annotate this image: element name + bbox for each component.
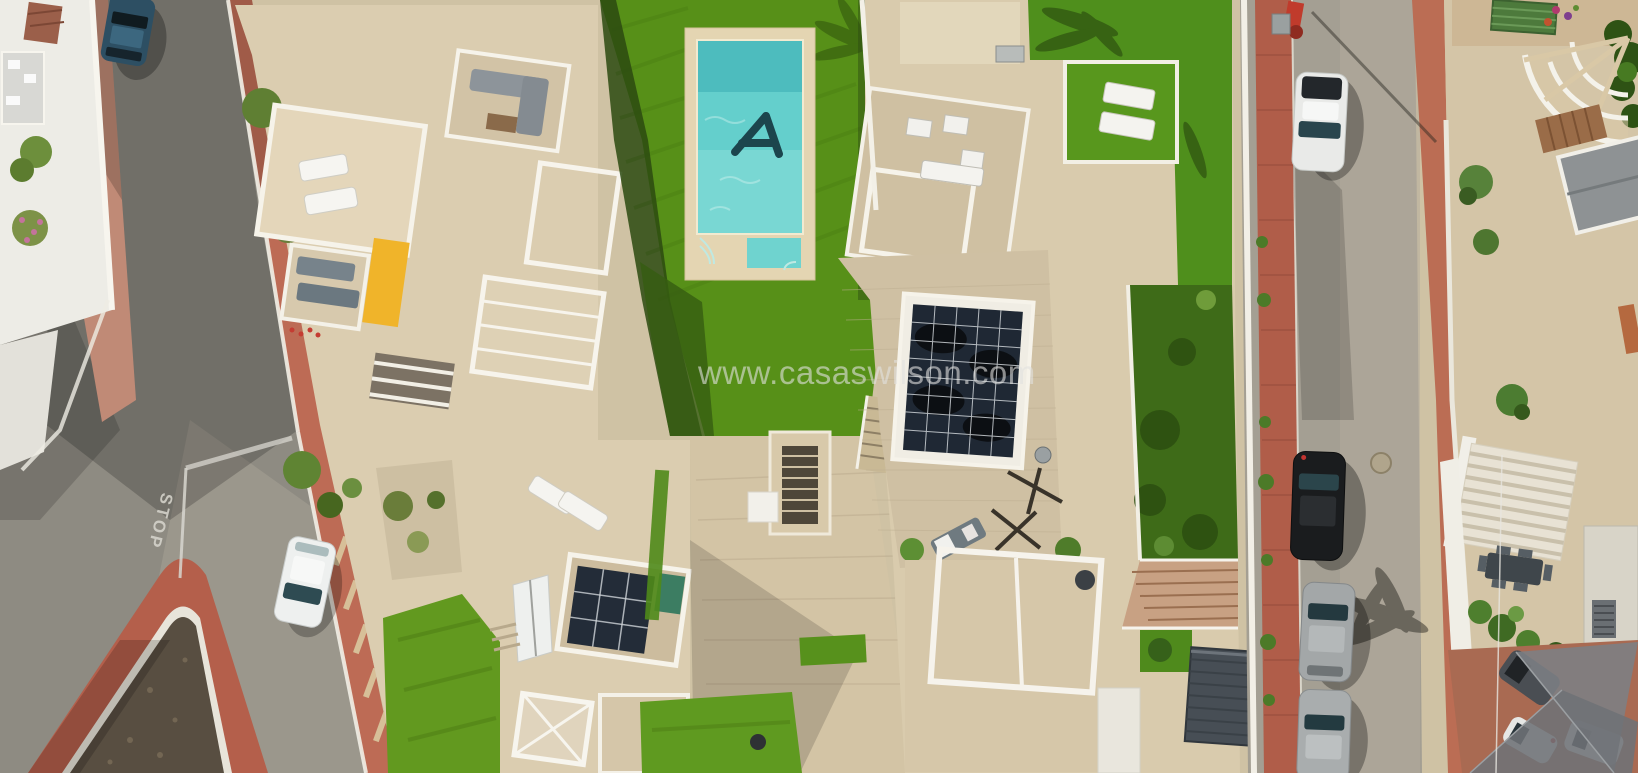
stairwell — [770, 432, 830, 534]
right-neighborhood — [1440, 0, 1638, 773]
grass-strip-small — [799, 634, 866, 665]
solar-pergola-left — [557, 555, 689, 666]
watermark: www.casaswilson.com — [697, 354, 1036, 391]
manhole — [1371, 453, 1391, 473]
right-garden — [1128, 285, 1238, 560]
bbq-dot — [750, 734, 766, 750]
swimming-pool — [685, 28, 815, 280]
pergola-frame-2 — [472, 277, 604, 388]
grass-patch-bottom — [640, 692, 802, 773]
garden-stairs — [1122, 560, 1238, 628]
aerial-photo-villas: STOP — [0, 0, 1638, 773]
white-cube-table — [748, 492, 778, 522]
ac-building — [1584, 526, 1638, 646]
shade-sail-court — [1448, 640, 1638, 773]
green-bench — [1491, 0, 1557, 34]
pergola-cube — [514, 693, 592, 764]
roof-vent — [1035, 447, 1051, 463]
grass-strip-left-villa — [383, 594, 500, 773]
ac-unit — [996, 46, 1024, 62]
